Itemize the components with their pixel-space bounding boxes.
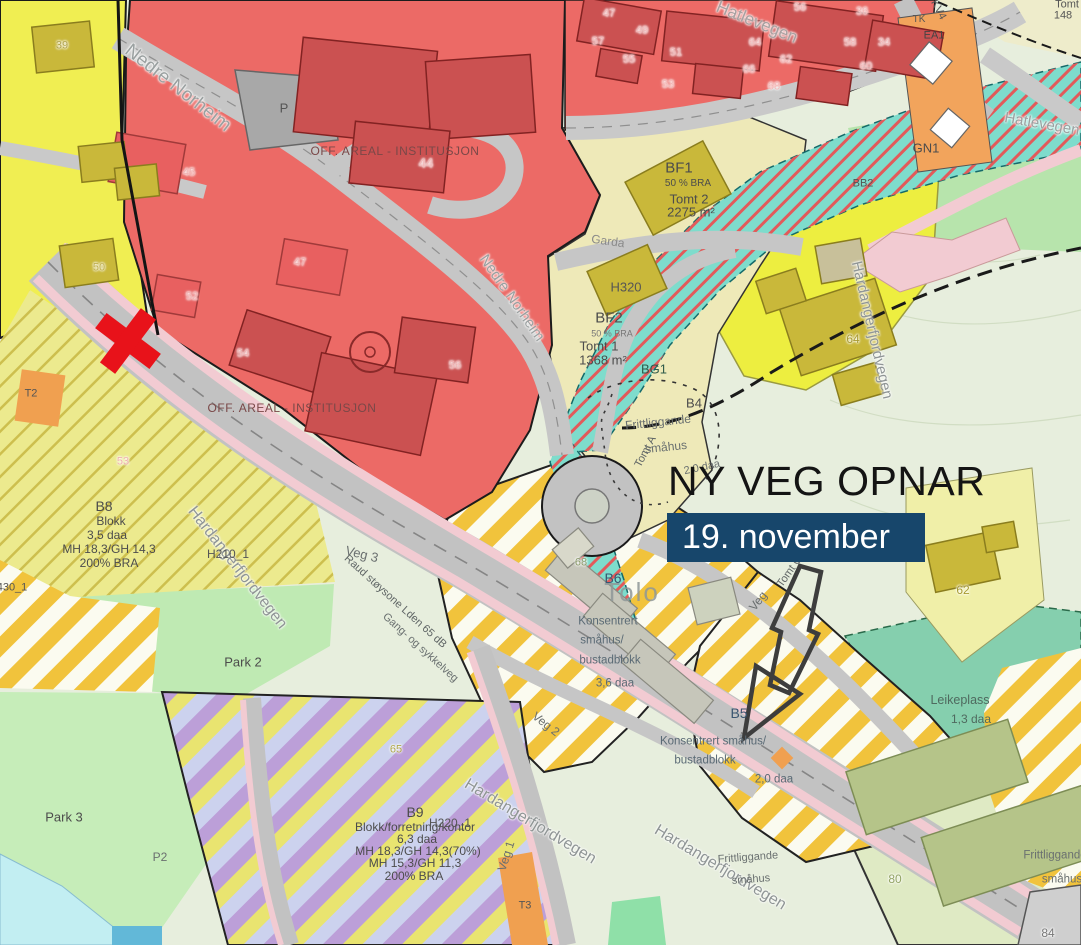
date-banner: 19. november <box>667 513 925 562</box>
zoning-map-screenshot: Nedre NorheimNedre NorheimHatlevegenHatl… <box>0 0 1081 945</box>
headline-text: NY VEG OPNAR <box>668 458 985 505</box>
date-banner-label: 19. november <box>682 518 890 557</box>
